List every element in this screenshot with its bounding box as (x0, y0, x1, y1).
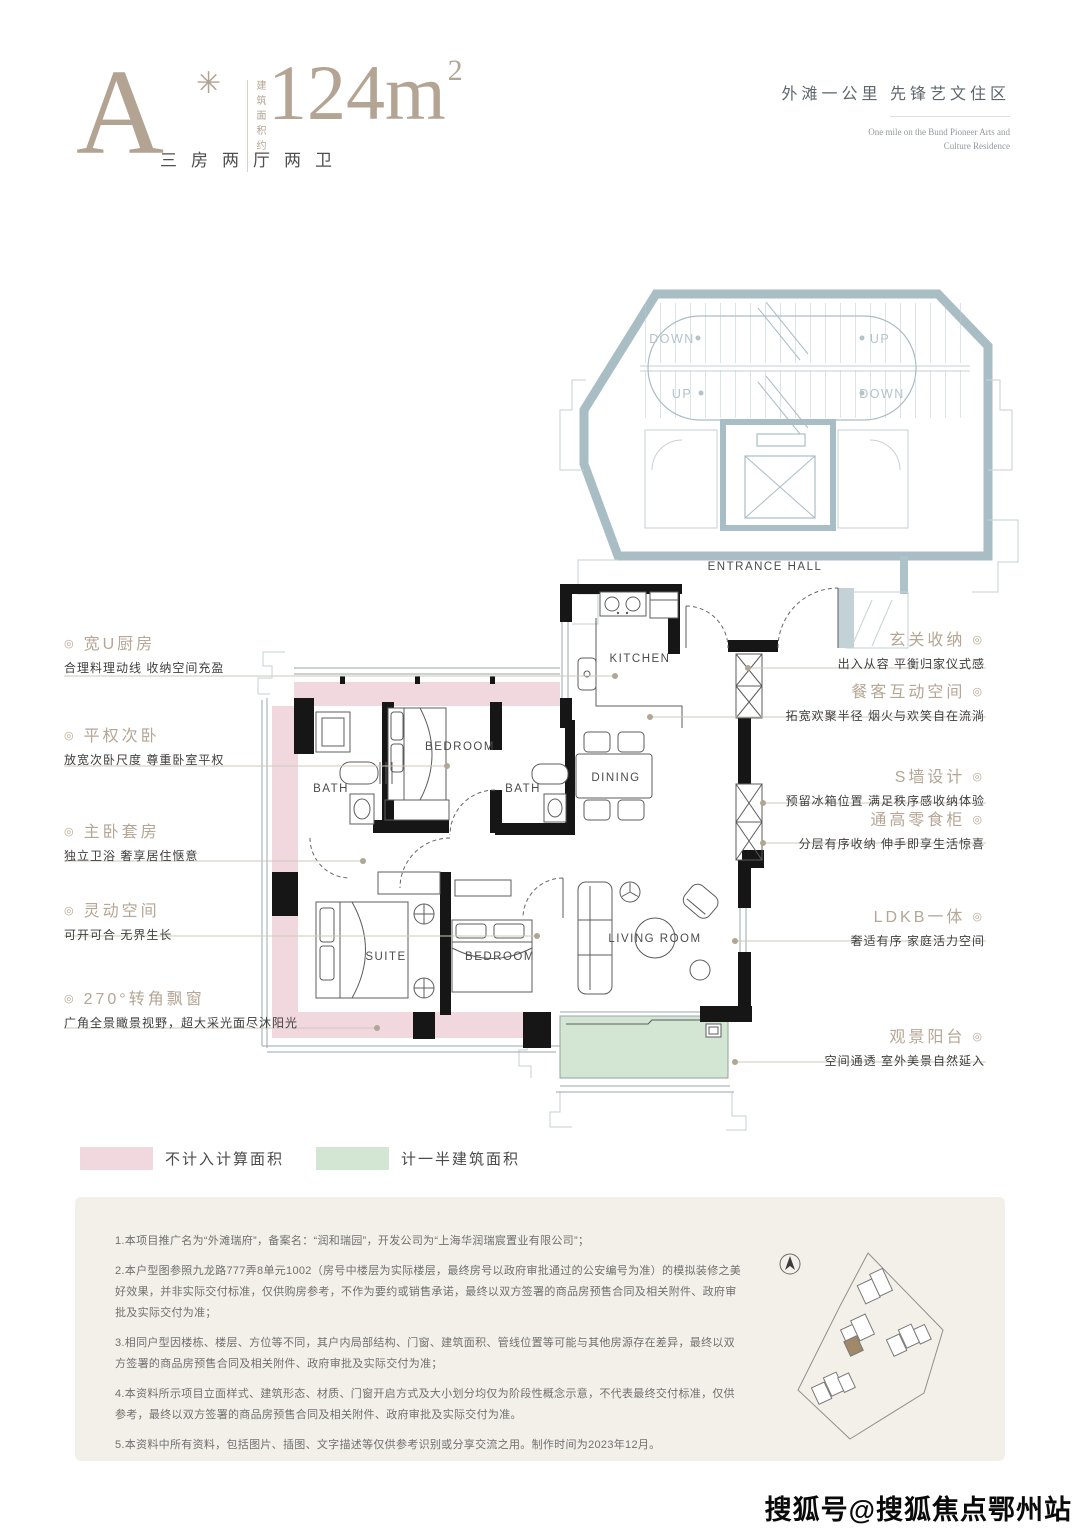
ring-bullet-icon: ◎ (972, 911, 985, 923)
feature-title: ◎灵动空间 (64, 897, 172, 921)
ring-bullet-icon: ◎ (972, 1031, 985, 1043)
feature-note-master-suite: ◎主卧套房 独立卫浴 奢享居住惬意 (64, 818, 198, 864)
feature-title: LDKB一体◎ (851, 903, 985, 927)
room-label-bedroom-top: BEDROOM (425, 741, 495, 753)
feature-title: 通高零食柜◎ (799, 806, 985, 830)
stair-label-up-lower: UP (672, 387, 692, 401)
legend-label: 计一半建筑面积 (401, 1148, 520, 1169)
feature-note-second-bedroom: ◎平权次卧 放宽次卧尺度 尊重卧室平权 (64, 722, 224, 768)
feature-note-dining-interaction: 餐客互动空间◎ 拓宽欢聚半径 烟火与欢笑自在流淌 (786, 678, 985, 724)
disclaimer-item: 4.本资料所示项目立面样式、建筑形态、材质、门窗开启方式及大小划分均仅为阶段性概… (115, 1384, 743, 1426)
site-buildings (810, 1268, 931, 1404)
disclaimer-item: 1.本项目推广名为“外滩瑞府”，备案名：“润和瑞园”，开发公司为“上海华润瑞宸置… (115, 1231, 743, 1252)
compass-icon (780, 1254, 800, 1274)
stair-label-down-lower: DOWN (859, 387, 905, 401)
balcony-area (560, 1016, 728, 1078)
legend-item-half-area: 计一半建筑面积 (316, 1147, 520, 1170)
ring-bullet-icon: ◎ (64, 905, 77, 917)
feature-desc: 独立卫浴 奢享居住惬意 (64, 847, 198, 864)
feature-desc: 分层有序收纳 伸手即享生活惊喜 (799, 835, 985, 852)
ring-bullet-icon: ◎ (972, 814, 985, 826)
feature-desc: 出入从容 平衡归家仪式感 (838, 655, 985, 672)
ring-bullet-icon: ◎ (972, 634, 985, 646)
room-label-bath-left: BATH (313, 783, 349, 795)
feature-note-view-balcony: 观景阳台◎ 空间通透 室外美景自然延入 (825, 1023, 985, 1069)
ring-bullet-icon: ◎ (972, 771, 985, 783)
disclaimer-text: 1.本项目推广名为“外滩瑞府”，备案名：“润和瑞园”，开发公司为“上海华润瑞宸置… (115, 1231, 743, 1465)
legend-label: 不计入计算面积 (165, 1148, 284, 1169)
feature-note-snack-cabinet: 通高零食柜◎ 分层有序收纳 伸手即享生活惊喜 (799, 806, 985, 852)
feature-title: ◎宽U厨房 (64, 630, 224, 654)
room-label-bedroom-bottom: BEDROOM (465, 951, 535, 963)
area-legend: 不计入计算面积 计一半建筑面积 (80, 1147, 520, 1170)
floorplan-poster: DOWN UP UP DOWN (0, 0, 1080, 1537)
disclaimer-item: 5.本资料中所有资料，包括图片、插图、文字描述等仅供参考识别或分享交流之用。制作… (115, 1435, 743, 1456)
room-label-living-room: LIVING ROOM (608, 933, 701, 945)
feature-desc: 合理料理动线 收纳空间充盈 (64, 659, 224, 676)
legend-swatch-pink (80, 1147, 153, 1170)
feature-desc: 广角全景瞰景视野，超大采光面尽沐阳光 (64, 1014, 298, 1031)
ring-bullet-icon: ◎ (972, 686, 985, 698)
feature-desc: 拓宽欢聚半径 烟火与欢笑自在流淌 (786, 707, 985, 724)
legend-item-excluded: 不计入计算面积 (80, 1147, 284, 1170)
feature-desc: 可开可合 无界生长 (64, 926, 172, 943)
disclaimer-item: 3.相同户型因楼栋、楼层、方位等不同，其户内局部结构、门窗、建筑面积、管线位置等… (115, 1333, 743, 1375)
ring-bullet-icon: ◎ (64, 638, 77, 650)
watermark: 搜狐号@搜狐焦点鄂州站 (765, 1488, 1072, 1527)
stair-label-down-upper: DOWN (649, 332, 695, 346)
feature-note-s-wall: S墙设计◎ 预留冰箱位置 满足秩序感收纳体验 (786, 763, 985, 809)
feature-title: S墙设计◎ (786, 763, 985, 787)
feature-note-corner-window: ◎270°转角飘窗 广角全景瞰景视野，超大采光面尽沐阳光 (64, 985, 298, 1031)
room-label-entrance-hall: ENTRANCE HALL (708, 561, 823, 573)
feature-title: 玄关收纳◎ (838, 626, 985, 650)
feature-title: ◎270°转角飘窗 (64, 985, 298, 1009)
feature-desc: 放宽次卧尺度 尊重卧室平权 (64, 751, 224, 768)
feature-title: ◎平权次卧 (64, 722, 224, 746)
feature-title: ◎主卧套房 (64, 818, 198, 842)
ring-bullet-icon: ◎ (64, 826, 77, 838)
disclaimer-item: 2.本户型图参照九龙路777弄8单元1002（房号中楼层为实际楼层，最终房号以政… (115, 1261, 743, 1324)
feature-note-ldkb: LDKB一体◎ 奢适有序 家庭活力空间 (851, 903, 985, 949)
feature-desc: 空间通透 室外美景自然延入 (825, 1052, 985, 1069)
ring-bullet-icon: ◎ (64, 730, 77, 742)
feature-title: 观景阳台◎ (825, 1023, 985, 1047)
room-label-bath-mid: BATH (505, 783, 541, 795)
site-plan-sketch (768, 1218, 1008, 1453)
feature-desc: 奢适有序 家庭活力空间 (851, 932, 985, 949)
room-label-dining: DINING (591, 772, 640, 784)
room-label-kitchen: KITCHEN (610, 653, 671, 665)
feature-note-foyer-storage: 玄关收纳◎ 出入从容 平衡归家仪式感 (838, 626, 985, 672)
ring-bullet-icon: ◎ (64, 993, 77, 1005)
legend-swatch-green (316, 1147, 389, 1170)
feature-note-kitchen: ◎宽U厨房 合理料理动线 收纳空间充盈 (64, 630, 224, 676)
elevator-shaft (723, 422, 833, 528)
feature-title: 餐客互动空间◎ (786, 678, 985, 702)
stair-label-up-upper: UP (870, 332, 890, 346)
room-label-suite: SUITE (365, 951, 406, 963)
feature-note-flex-space: ◎灵动空间 可开可合 无界生长 (64, 897, 172, 943)
